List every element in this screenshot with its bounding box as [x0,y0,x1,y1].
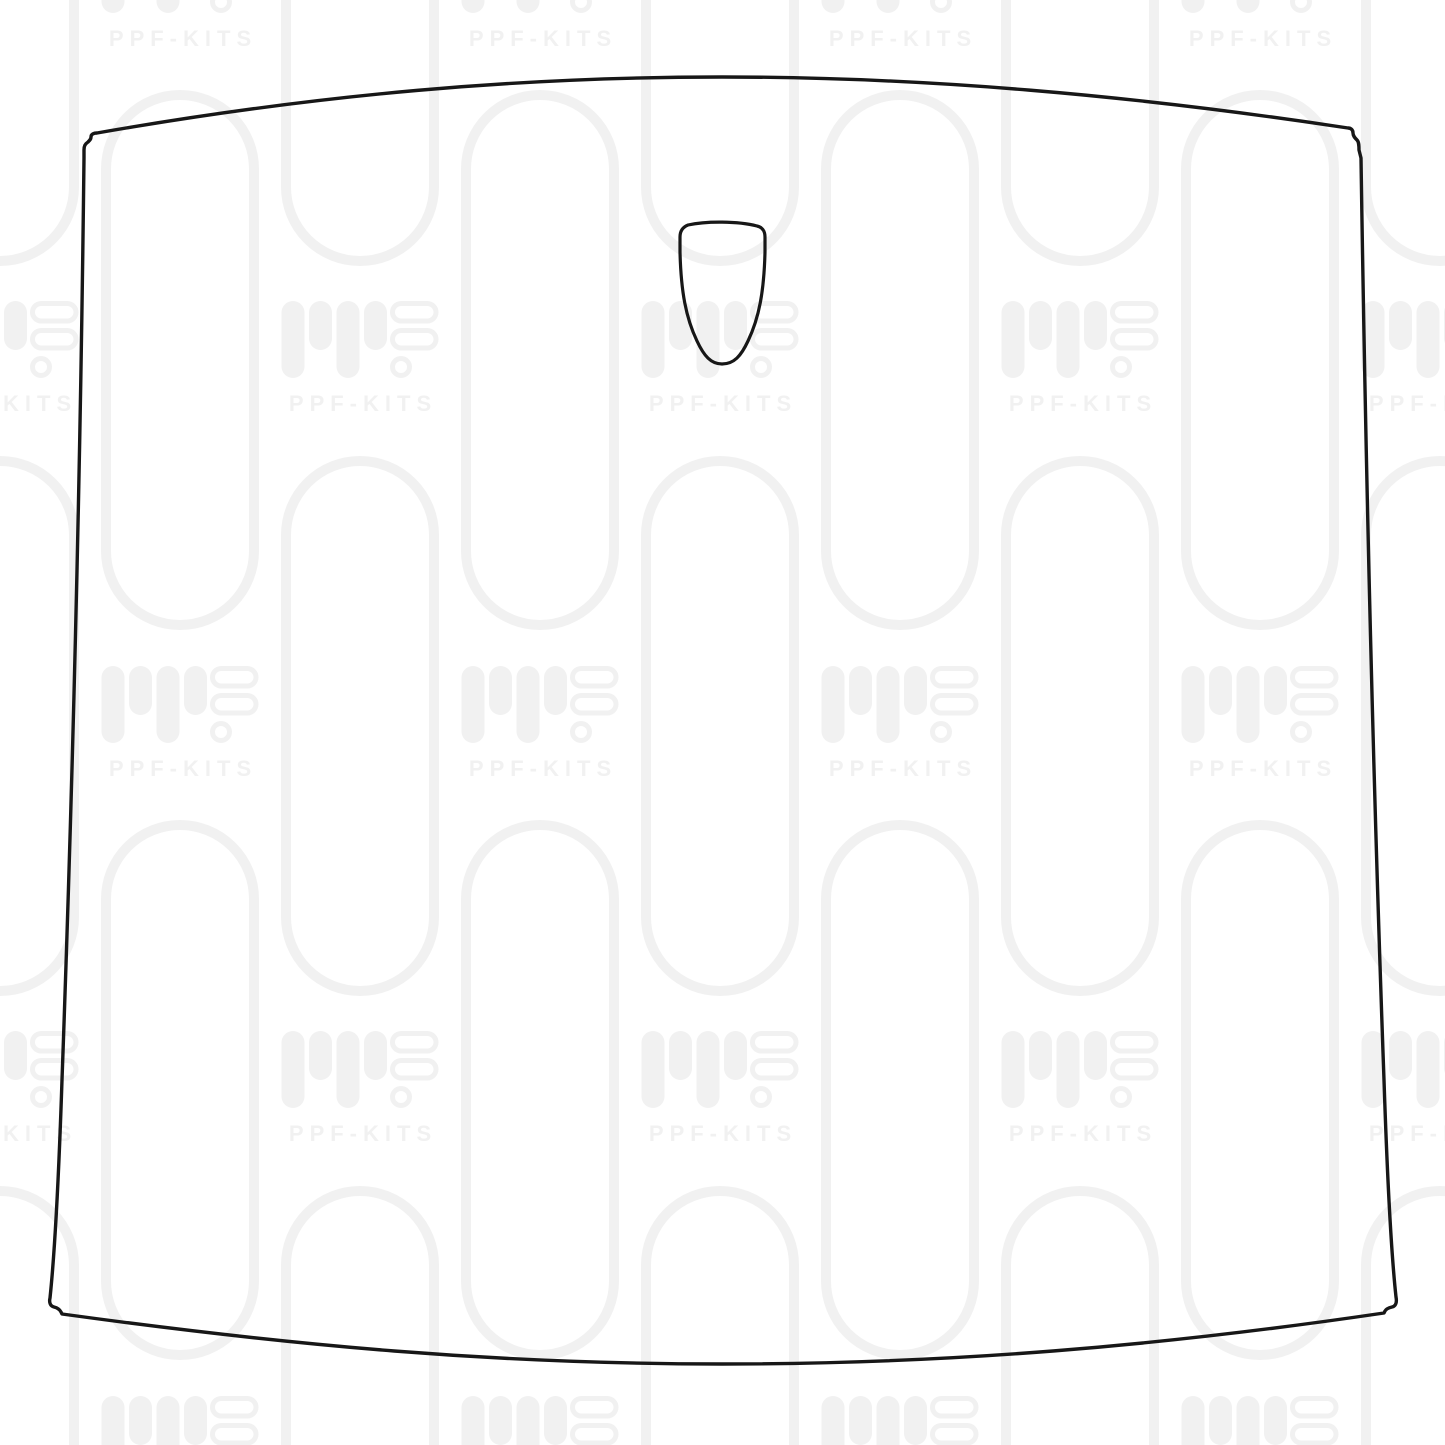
ppf-template-canvas: PPF-KITS [0,0,1445,1445]
watermark-layer [0,0,1445,1445]
ppf-template-page: PPF-KITS [0,0,1445,1445]
